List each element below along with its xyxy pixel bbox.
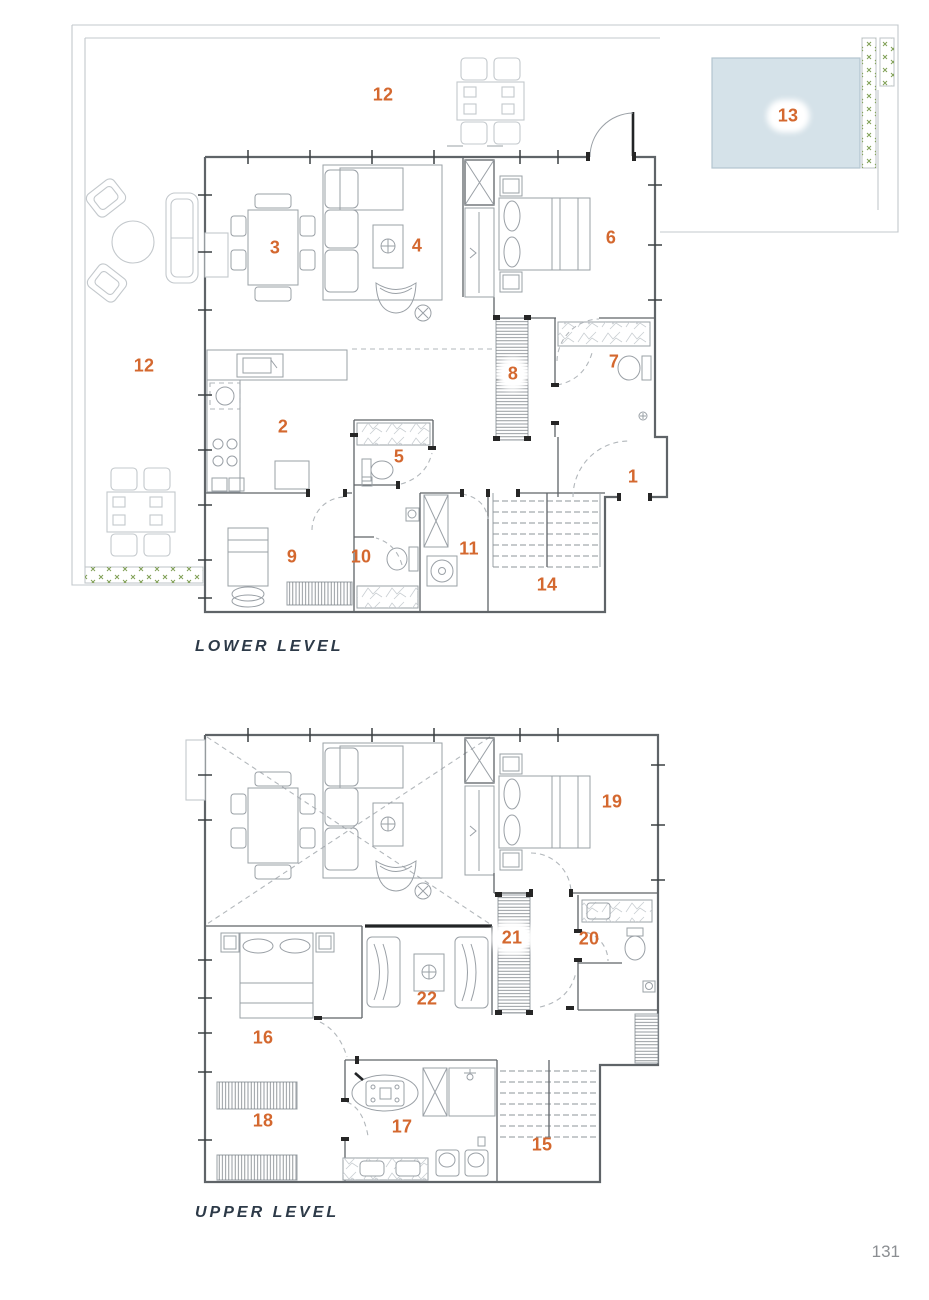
void-over-living [207, 737, 492, 926]
bathroom-7 [557, 319, 651, 420]
room-number-20: 20 [579, 929, 600, 950]
room-number-12: 12 [134, 356, 155, 377]
room-number-12: 12 [373, 85, 394, 106]
pool-door [447, 112, 633, 157]
room-number-8: 8 [502, 363, 524, 386]
terrace-dining-left [107, 468, 175, 556]
room-number-2: 2 [278, 417, 288, 438]
room-number-22: 22 [417, 989, 438, 1010]
terrace-dining-top [457, 58, 524, 144]
wardrobe-21 [495, 892, 533, 1015]
room-number-13: 13 [772, 105, 805, 128]
page-number: 131 [872, 1242, 900, 1262]
entry-1 [573, 441, 652, 501]
room-number-19: 19 [602, 792, 623, 813]
bedroom-16 [221, 933, 334, 1018]
room-number-14: 14 [537, 575, 558, 596]
room-number-18: 18 [253, 1111, 274, 1132]
lower-outer-walls [205, 157, 667, 612]
room-number-7: 7 [609, 352, 619, 373]
room-number-11: 11 [459, 539, 479, 560]
room-number-9: 9 [287, 547, 297, 568]
room-number-3: 3 [270, 238, 280, 259]
stairs-14 [493, 493, 600, 567]
room-number-1: 1 [628, 467, 638, 488]
floor-plan-drawing [0, 0, 929, 1300]
closet-upper-right [635, 1014, 658, 1063]
room-number-15: 15 [532, 1135, 553, 1156]
room-number-4: 4 [412, 236, 422, 257]
lower-level-title: LOWER LEVEL [195, 638, 344, 656]
bathroom-17 [343, 1068, 495, 1180]
stairs-15 [500, 1060, 597, 1137]
room-number-5: 5 [394, 447, 404, 468]
lower-partitions [205, 157, 655, 612]
floorplan-page: 121334678122519101114 1921202216181715 L… [0, 0, 929, 1300]
room-number-10: 10 [351, 547, 372, 568]
left-ledge [186, 740, 205, 800]
room-number-6: 6 [606, 228, 616, 249]
terrace-lounge-set [84, 177, 198, 305]
upper-level-title: UPPER LEVEL [195, 1204, 339, 1222]
room-number-17: 17 [392, 1117, 413, 1138]
room-number-16: 16 [253, 1028, 274, 1049]
room-number-21: 21 [496, 927, 529, 950]
